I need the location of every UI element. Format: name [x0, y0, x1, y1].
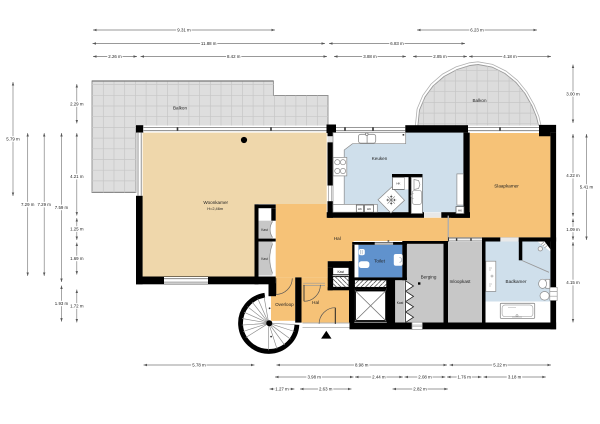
svg-text:2.82 m: 2.82 m [413, 387, 427, 392]
svg-text:4.15 m: 4.15 m [566, 280, 580, 285]
svg-text:4.18 m: 4.18 m [503, 54, 517, 59]
svg-text:6.23 m: 6.23 m [470, 28, 484, 33]
svg-text:1.27 m: 1.27 m [275, 387, 289, 392]
svg-text:Kast: Kast [261, 228, 268, 232]
svg-text:Toilet: Toilet [374, 259, 385, 264]
svg-text:HK: HK [396, 182, 400, 186]
svg-text:1.72 m: 1.72 m [70, 304, 84, 309]
svg-text:HK: HK [358, 207, 362, 211]
svg-text:6.83 m: 6.83 m [390, 41, 404, 46]
svg-text:Inloopkast: Inloopkast [450, 279, 472, 284]
svg-text:Kast: Kast [397, 301, 404, 305]
svg-text:Hal: Hal [334, 236, 341, 241]
svg-text:9.31 m: 9.31 m [177, 28, 191, 33]
svg-text:Kast: Kast [261, 257, 268, 261]
svg-text:Berging: Berging [421, 275, 437, 280]
svg-text:2.26 m: 2.26 m [108, 54, 122, 59]
svg-text:5.79 m: 5.79 m [6, 137, 20, 142]
svg-text:3.00 m: 3.00 m [566, 91, 580, 96]
svg-text:2.08 m: 2.08 m [418, 375, 432, 380]
svg-text:11.88 m: 11.88 m [201, 41, 217, 46]
svg-text:4.21 m: 4.21 m [70, 174, 84, 179]
svg-text:2.85 m: 2.85 m [433, 54, 447, 59]
svg-text:3.18 m: 3.18 m [508, 375, 522, 380]
svg-text:Badkamer: Badkamer [506, 279, 527, 284]
svg-text:Overloop: Overloop [275, 302, 294, 307]
svg-text:5.78 m: 5.78 m [192, 363, 206, 368]
svg-text:HK: HK [458, 209, 462, 213]
svg-text:2.44 m: 2.44 m [372, 375, 386, 380]
svg-text:1.93 m: 1.93 m [55, 301, 69, 306]
svg-text:2.63 m: 2.63 m [319, 387, 333, 392]
svg-text:1.76 m: 1.76 m [457, 375, 471, 380]
svg-text:1.69 m: 1.69 m [70, 256, 84, 261]
svg-text:7.59 m: 7.59 m [55, 205, 69, 210]
svg-text:Slaapkamer: Slaapkamer [494, 184, 519, 189]
svg-text:2.29 m: 2.29 m [70, 101, 84, 106]
svg-text:HK: HK [367, 207, 371, 211]
svg-text:3.98 m: 3.98 m [307, 375, 321, 380]
svg-text:Balkon: Balkon [173, 106, 187, 111]
svg-text:7.29 m: 7.29 m [37, 202, 51, 207]
svg-text:8.98 m: 8.98 m [355, 363, 369, 368]
svg-text:3.88 m: 3.88 m [363, 54, 377, 59]
svg-text:1.25 m: 1.25 m [70, 227, 84, 232]
svg-text:Hal: Hal [312, 300, 319, 305]
svg-text:Keuken: Keuken [372, 156, 388, 161]
svg-text:1.09 m: 1.09 m [566, 227, 580, 232]
svg-text:Kast: Kast [337, 270, 344, 274]
svg-text:Balkon: Balkon [472, 98, 486, 103]
svg-text:5.22 m: 5.22 m [493, 363, 507, 368]
svg-text:5.41 m: 5.41 m [580, 185, 594, 190]
svg-text:4.22 m: 4.22 m [566, 173, 580, 178]
svg-text:7.29 m: 7.29 m [21, 202, 35, 207]
svg-text:8.42 m: 8.42 m [227, 54, 241, 59]
